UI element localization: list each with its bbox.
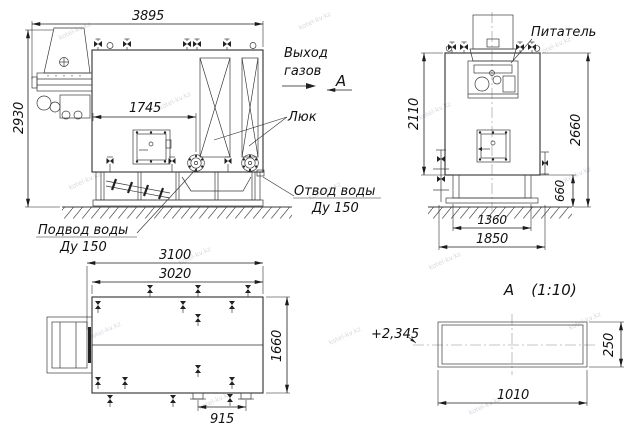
watermark-text: kotel-kv.kz (87, 320, 122, 342)
hatch-annotation: Люк (214, 110, 317, 146)
valve-icon (193, 39, 201, 50)
boiler-assembly-drawing: kotel-kv.kz kotel-kv.kz kotel-kv.kz kote… (0, 0, 644, 430)
watermark-text: kotel-kv.kz (297, 10, 332, 32)
duct-outer (438, 322, 587, 367)
valve-icon (147, 285, 153, 297)
feeder-label: Питатель (531, 25, 596, 40)
lifting-eye-icon (250, 43, 256, 49)
gas-flow-arrow-icon (282, 83, 316, 89)
watermark-text: kotel-kv.kz (157, 90, 192, 112)
dim-text: 2660 (569, 114, 584, 146)
boiler-body-front (445, 53, 540, 175)
dim-side-overall-height: 2930 (12, 30, 60, 207)
dim-top-body-width: 1660 (266, 297, 290, 393)
watermark-text: kotel-kv.kz (67, 170, 102, 192)
gas-outlet-label-line1: Выход (284, 46, 328, 61)
dim-text: 915 (210, 412, 234, 427)
hatch-label: Люк (287, 110, 317, 125)
lifting-eye-icon (107, 43, 113, 49)
valve-icon (516, 42, 524, 53)
valve-icon (122, 377, 128, 389)
section-title-scale: (1:10) (531, 281, 576, 299)
valve-icon (528, 42, 536, 53)
dim-text: 1660 (270, 330, 285, 362)
valve-icon (245, 285, 251, 297)
watermark-text: kotel-kv.kz (327, 325, 362, 347)
valve-icon (169, 157, 176, 172)
valve-icon (94, 39, 102, 50)
hatch-panel-right (242, 58, 258, 157)
boiler-body-side (92, 50, 263, 172)
water-outlet-label-line1: Отвод воды (294, 184, 375, 199)
dim-text: 660 (553, 179, 567, 202)
gas-outlet-label-line2: газов (284, 64, 321, 79)
roof-valves-front (446, 42, 540, 53)
valve-icon (95, 301, 101, 313)
valve-icon (183, 39, 191, 50)
valve-icon (195, 285, 201, 297)
dim-text: 3895 (132, 9, 164, 24)
valve-icon (170, 395, 176, 407)
top-view-valves (95, 285, 251, 407)
dim-text: 250 (602, 333, 617, 357)
section-a-title: А (1:10) (503, 281, 577, 299)
valve-icon (123, 39, 131, 50)
drawing-svg: kotel-kv.kz kotel-kv.kz kotel-kv.kz kote… (0, 0, 644, 430)
dim-top-overall-length: 3100 (87, 248, 263, 330)
roof-valves-side (94, 39, 256, 50)
dim-text: 2110 (407, 98, 422, 130)
inspection-door-front (477, 130, 510, 162)
top-view: 3100 3020 1660 915 (47, 248, 290, 427)
elevation-annotation: +2,345 (371, 327, 419, 343)
water-inlet-label-line2: Ду 150 (59, 240, 107, 255)
inspection-door-side (133, 130, 171, 164)
dim-text: 3020 (159, 267, 191, 282)
valve-icon (229, 377, 235, 389)
water-inlet-label-line1: Подвод воды (38, 223, 128, 238)
valve-icon (95, 377, 101, 389)
section-view-arrow: А (327, 72, 352, 90)
dim-text: 2930 (12, 102, 27, 134)
fuel-feeder-side (32, 28, 92, 119)
hatch-panel-left (200, 58, 230, 157)
dim-text: 1360 (477, 213, 507, 227)
watermark-text: kotel-kv.kz (427, 250, 462, 272)
water-outlet-label-line2: Ду 150 (311, 201, 359, 216)
view-arrow-letter: А (335, 72, 346, 90)
dim-section-width: 1010 (438, 370, 587, 406)
gas-outlet-annotation: Выход газов (282, 46, 328, 89)
side-view: 3895 2930 1745 (12, 9, 292, 219)
dim-text: 1745 (129, 101, 161, 116)
right-pipe-assembly (541, 152, 549, 175)
valve-icon (225, 157, 232, 172)
valve-icon (460, 42, 468, 53)
watermark-text: kotel-kv.kz (417, 100, 452, 122)
dim-text: 3100 (159, 248, 191, 263)
valve-icon (229, 301, 235, 313)
front-view: 2110 2660 660 1360 1850 (407, 12, 591, 250)
dim-text: 1010 (497, 388, 529, 403)
valve-icon (223, 39, 231, 50)
section-title-letter: А (503, 281, 514, 299)
duct-inner (442, 325, 583, 364)
watermark-text: kotel-kv.kz (567, 310, 602, 332)
dim-side-door-offset: 1745 (93, 101, 196, 152)
valve-icon (107, 395, 113, 407)
valve-icon (107, 157, 114, 172)
valve-icon (195, 365, 201, 377)
fuel-feeder-top (47, 317, 92, 373)
valve-icon (180, 301, 186, 313)
left-pipe-assembly (433, 150, 449, 202)
section-a-view: А (1:10) +2,345 250 1010 (371, 281, 624, 406)
dim-top-body-length: 3020 (92, 267, 263, 294)
fuel-feeder-front (468, 15, 518, 98)
dim-section-height: 250 (589, 322, 624, 367)
ground-hatch (62, 207, 292, 219)
ash-trough (182, 177, 251, 191)
dim-text: 1850 (476, 232, 508, 247)
valve-icon (195, 314, 201, 326)
watermark-text: kotel-kv.kz (57, 20, 92, 42)
